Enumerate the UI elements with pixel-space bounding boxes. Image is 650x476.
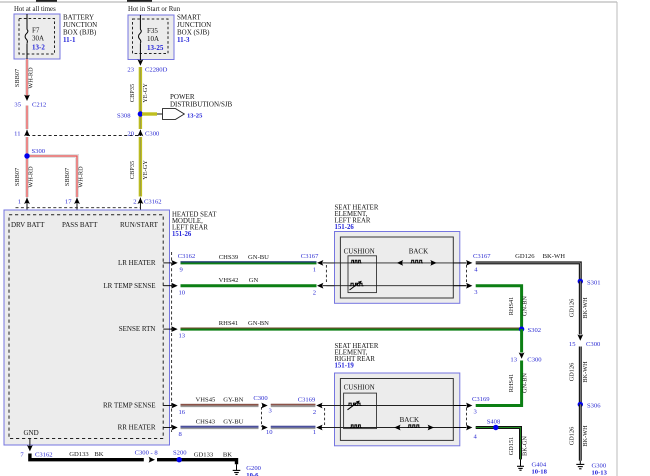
svg-text:CHS43: CHS43	[196, 419, 216, 426]
svg-text:WH-RD: WH-RD	[78, 166, 85, 188]
svg-text:GN-BU: GN-BU	[248, 254, 269, 261]
svg-text:LR HEATER: LR HEATER	[118, 259, 156, 267]
svg-text:SBB07: SBB07	[14, 69, 21, 87]
svg-text:2: 2	[313, 289, 316, 296]
svg-text:GD151: GD151	[508, 437, 515, 456]
svg-text:GD126: GD126	[515, 253, 535, 260]
svg-text:RHS41: RHS41	[219, 320, 238, 327]
svg-text:GY-BU: GY-BU	[223, 419, 243, 426]
svg-text:F7: F7	[32, 27, 40, 35]
svg-text:GND: GND	[24, 429, 39, 437]
svg-text:2: 2	[133, 198, 136, 205]
svg-text:S408: S408	[487, 419, 501, 426]
svg-text:C3162: C3162	[178, 253, 196, 260]
svg-text:151-26: 151-26	[335, 224, 355, 231]
svg-text:S200: S200	[173, 449, 187, 456]
svg-text:7: 7	[20, 451, 24, 458]
svg-text:LR TEMP SENSE: LR TEMP SENSE	[103, 282, 155, 290]
svg-text:RHS41: RHS41	[508, 297, 515, 316]
svg-text:17: 17	[65, 198, 72, 205]
svg-text:C3169: C3169	[472, 396, 490, 403]
svg-text:G404: G404	[532, 462, 547, 469]
svg-text:35: 35	[14, 102, 21, 109]
svg-text:BACK: BACK	[409, 247, 428, 255]
svg-text:GN: GN	[249, 277, 259, 284]
svg-text:3: 3	[474, 409, 478, 416]
svg-text:30A: 30A	[32, 35, 44, 43]
svg-text:C2280D: C2280D	[145, 66, 168, 73]
svg-text:10-6: 10-6	[246, 472, 259, 476]
svg-text:C300: C300	[145, 130, 160, 137]
svg-text:SBB07: SBB07	[14, 168, 21, 186]
svg-text:1: 1	[313, 267, 316, 274]
svg-text:F35: F35	[147, 27, 158, 35]
svg-text:13-25: 13-25	[187, 112, 203, 119]
svg-text:GD133: GD133	[194, 451, 214, 458]
svg-text:C300: C300	[253, 395, 268, 402]
svg-text:CBP35: CBP35	[129, 161, 136, 179]
svg-text:CHS39: CHS39	[219, 254, 239, 261]
svg-text:RHS41: RHS41	[508, 374, 515, 393]
svg-text:BK-GN: BK-GN	[521, 436, 528, 456]
svg-text:CUSHION: CUSHION	[344, 247, 375, 255]
svg-text:S308: S308	[117, 112, 131, 119]
svg-text:151-26: 151-26	[172, 231, 192, 238]
svg-text:2: 2	[313, 409, 316, 416]
svg-text:RR TEMP SENSE: RR TEMP SENSE	[103, 402, 156, 410]
svg-text:GY-BN: GY-BN	[223, 397, 243, 404]
svg-text:11-1: 11-1	[63, 36, 76, 44]
svg-text:1: 1	[313, 429, 316, 436]
svg-text:GN-BN: GN-BN	[248, 320, 269, 327]
svg-text:GD126: GD126	[569, 299, 576, 318]
svg-text:11-3: 11-3	[177, 36, 190, 44]
svg-text:YE-GY: YE-GY	[142, 83, 149, 103]
svg-text:13: 13	[510, 356, 517, 363]
svg-text:BK: BK	[223, 451, 232, 458]
svg-text:RR HEATER: RR HEATER	[118, 424, 156, 432]
svg-text:BK: BK	[94, 451, 103, 458]
svg-text:3: 3	[474, 289, 478, 296]
svg-text:11: 11	[14, 130, 20, 137]
svg-text:C3167: C3167	[473, 253, 491, 260]
svg-text:10: 10	[266, 429, 273, 436]
svg-text:GN-BN: GN-BN	[521, 296, 528, 316]
svg-text:GD133: GD133	[69, 451, 89, 458]
svg-text:13-25: 13-25	[147, 44, 164, 52]
svg-text:GD126: GD126	[569, 427, 576, 446]
svg-text:C3169: C3169	[298, 397, 316, 404]
svg-text:8: 8	[179, 431, 183, 438]
svg-text:151-19: 151-19	[335, 363, 355, 370]
svg-text:C212: C212	[32, 102, 46, 109]
svg-text:C300: C300	[586, 341, 601, 348]
svg-text:BACK: BACK	[400, 416, 419, 424]
svg-text:10-18: 10-18	[532, 469, 548, 476]
svg-text:1: 1	[18, 198, 21, 205]
svg-text:15: 15	[569, 341, 576, 348]
svg-text:13: 13	[179, 333, 186, 340]
svg-text:BK-WH: BK-WH	[582, 425, 589, 447]
svg-text:BK-WH: BK-WH	[543, 253, 566, 260]
svg-text:WH-RD: WH-RD	[28, 166, 35, 188]
svg-text:4: 4	[474, 266, 478, 273]
svg-text:C3167: C3167	[301, 253, 319, 260]
svg-text:BK-WH: BK-WH	[582, 297, 589, 319]
svg-text:S302: S302	[528, 327, 542, 334]
svg-text:Hot at all times: Hot at all times	[14, 6, 56, 13]
svg-text:16: 16	[179, 409, 186, 416]
svg-text:9: 9	[180, 267, 184, 274]
svg-text:PASS BATT: PASS BATT	[62, 221, 98, 229]
svg-text:10A: 10A	[147, 35, 159, 43]
svg-text:RUN/START: RUN/START	[120, 221, 159, 229]
svg-text:Hot in Start or Run: Hot in Start or Run	[128, 6, 181, 13]
svg-text:10-13: 10-13	[592, 470, 608, 476]
svg-text:DISTRIBUTION/SJB: DISTRIBUTION/SJB	[170, 101, 233, 109]
svg-text:WH-RD: WH-RD	[28, 67, 35, 89]
svg-text:GN-BN: GN-BN	[521, 373, 528, 393]
svg-text:DRV BATT: DRV BATT	[11, 221, 45, 229]
svg-text:4: 4	[474, 433, 478, 440]
svg-text:CBP35: CBP35	[129, 84, 136, 102]
svg-text:C300: C300	[527, 356, 542, 363]
svg-text:C3162: C3162	[144, 198, 162, 205]
svg-text:S301: S301	[587, 279, 601, 286]
svg-text:10: 10	[179, 289, 186, 296]
svg-text:SENSE RTN: SENSE RTN	[119, 325, 156, 333]
svg-text:S300: S300	[32, 148, 46, 155]
svg-text:VHS42: VHS42	[219, 277, 239, 284]
svg-text:C300 - 8: C300 - 8	[135, 449, 159, 456]
svg-text:23: 23	[127, 66, 134, 73]
svg-text:3: 3	[269, 408, 273, 415]
svg-text:13-2: 13-2	[32, 44, 45, 52]
svg-text:YE-GY: YE-GY	[142, 160, 149, 180]
svg-text:BK-WH: BK-WH	[582, 361, 589, 383]
svg-text:CUSHION: CUSHION	[344, 384, 375, 392]
svg-text:G300: G300	[592, 462, 607, 469]
svg-text:C3162: C3162	[35, 451, 53, 458]
svg-text:S306: S306	[587, 402, 601, 409]
svg-text:20: 20	[127, 130, 134, 137]
svg-text:VHS45: VHS45	[196, 397, 216, 404]
svg-text:SBB07: SBB07	[64, 168, 71, 186]
svg-text:GD126: GD126	[569, 363, 576, 382]
